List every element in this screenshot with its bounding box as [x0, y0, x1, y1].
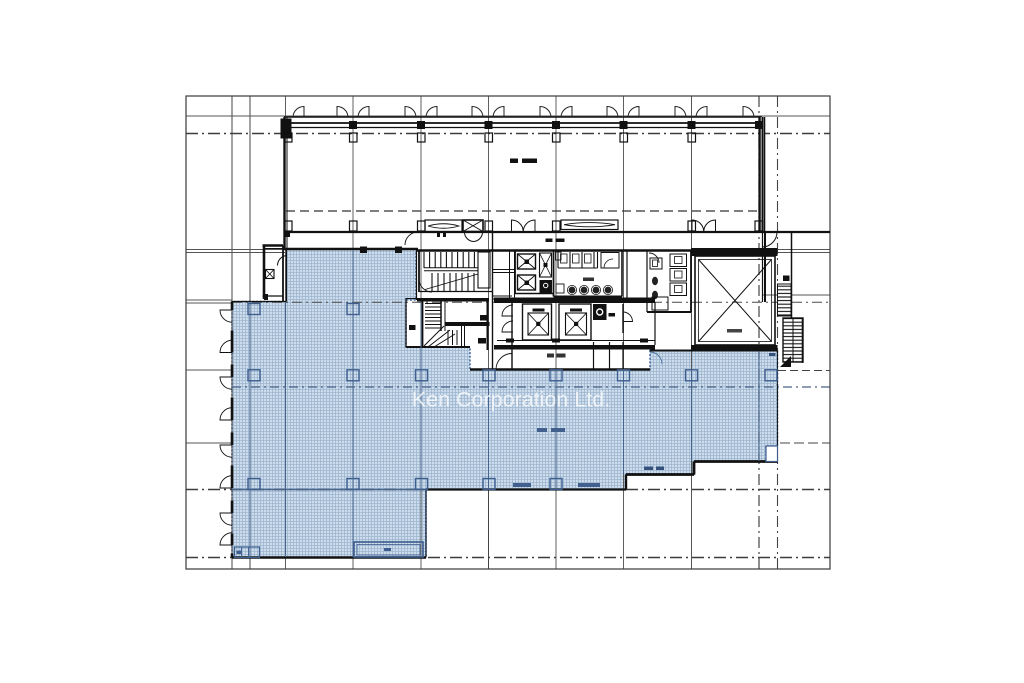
svg-text:Ken Corporation Ltd.: Ken Corporation Ltd.: [412, 388, 610, 412]
